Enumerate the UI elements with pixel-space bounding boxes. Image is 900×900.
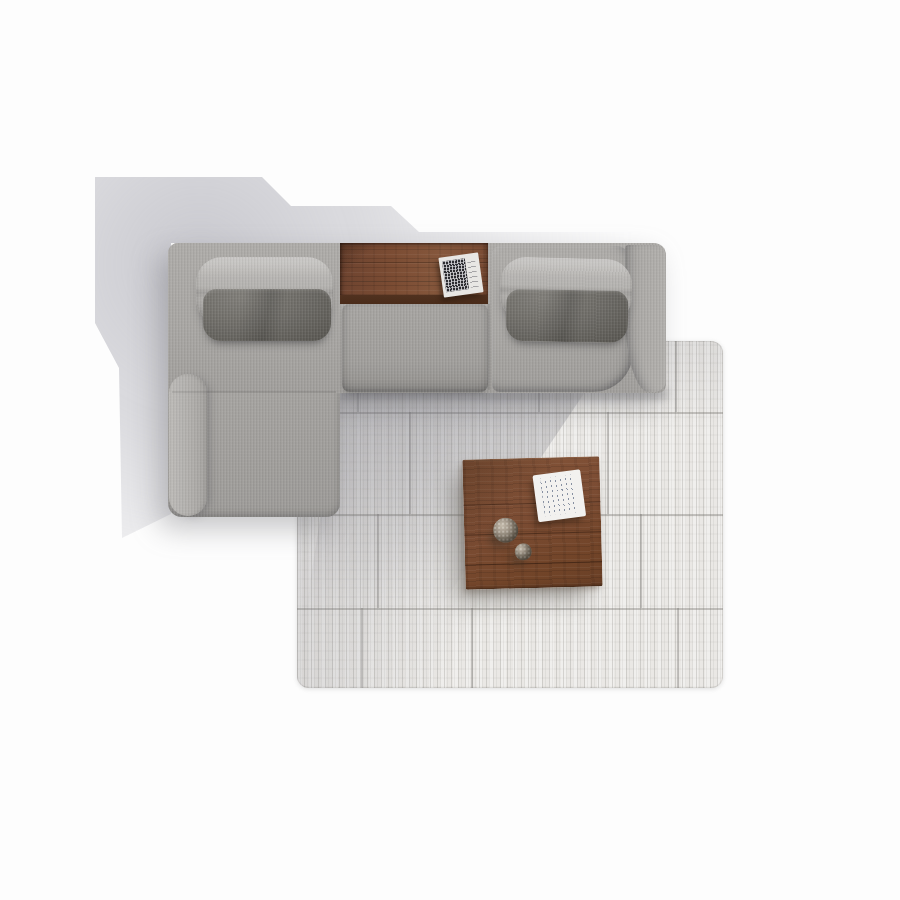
left-armrest-bolster bbox=[169, 374, 207, 516]
table-plank-seam bbox=[465, 561, 602, 566]
module-seam bbox=[488, 304, 490, 390]
tray-booklet bbox=[438, 252, 483, 297]
magazine-text-lines bbox=[540, 474, 577, 516]
tray-front-edge bbox=[340, 295, 488, 304]
lumbar-pillow-right bbox=[506, 289, 629, 343]
sectional-sofa bbox=[0, 0, 900, 900]
magazine bbox=[532, 469, 586, 522]
middle-seat-cushion bbox=[342, 304, 488, 392]
lumbar-pillow-left bbox=[203, 289, 331, 341]
chaise-seam bbox=[172, 391, 336, 393]
booklet-text-lines bbox=[467, 259, 479, 288]
render-canvas bbox=[0, 0, 900, 900]
table-plank-seam bbox=[464, 531, 601, 536]
coffee-table bbox=[462, 456, 602, 590]
booklet-print-block bbox=[442, 258, 469, 292]
